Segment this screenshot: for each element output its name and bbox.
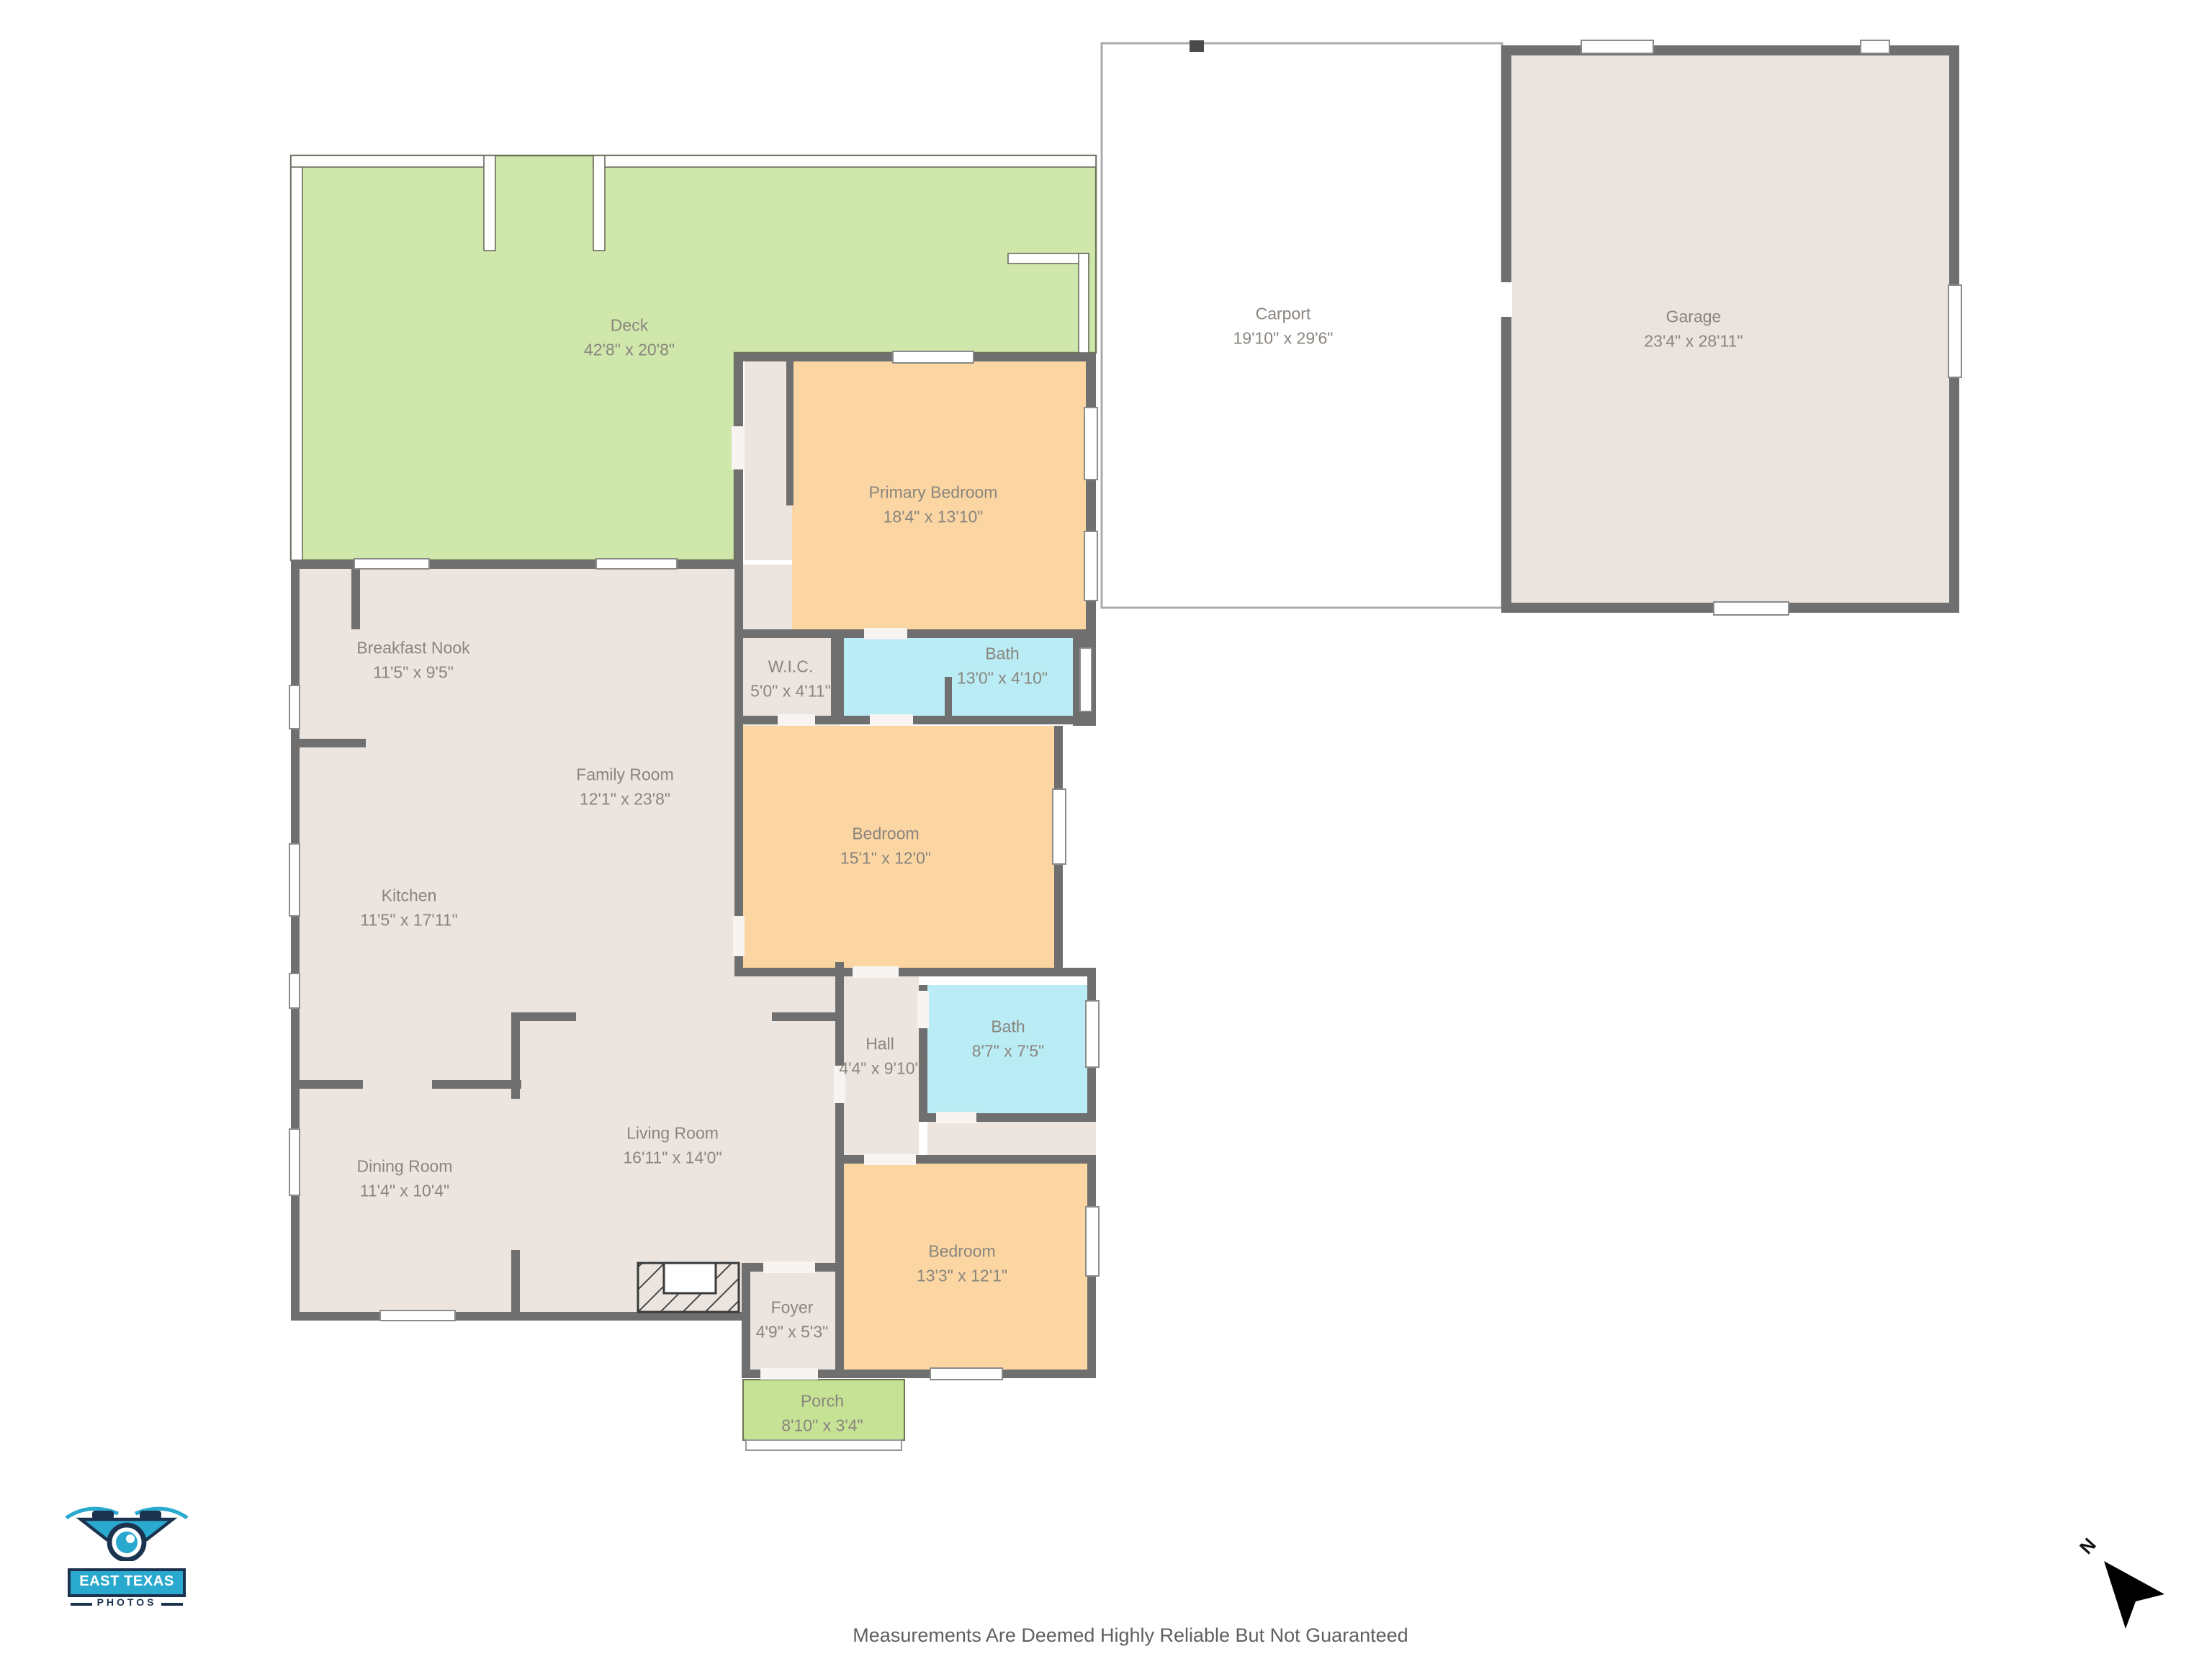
floor-plan-page: Deck42'8" x 20'8" Carport19'10" x 29'6" …: [0, 0, 2212, 1659]
room-vestibule-fill: [745, 361, 792, 560]
room-label-primary-bedroom: Primary Bedroom18'4" x 13'10": [869, 482, 998, 532]
room-label-garage: Garage23'4" x 28'11": [1644, 307, 1743, 356]
room-label-carport: Carport19'10" x 29'6": [1233, 304, 1334, 354]
room-label-porch: Porch8'10" x 3'4": [781, 1391, 863, 1441]
room-label-dining-room: Dining Room11'4" x 10'4": [357, 1156, 453, 1206]
room-label-bedroom-mid: Bedroom15'1" x 12'0": [840, 824, 931, 873]
room-label-foyer: Foyer4'9" x 5'3": [756, 1298, 829, 1347]
room-strip-fill: [927, 1122, 1096, 1155]
room-label-family-room: Family Room12'1" x 23'8": [576, 765, 673, 814]
room-label-kitchen: Kitchen11'5" x 17'11": [360, 886, 458, 935]
measurements-disclaimer: Measurements Are Deemed Highly Reliable …: [853, 1624, 1408, 1646]
logo-line-right: [161, 1602, 183, 1605]
floor-plan: Deck42'8" x 20'8" Carport19'10" x 29'6" …: [0, 0, 2212, 1659]
room-label-bedroom-bottom: Bedroom13'3" x 12'1": [917, 1241, 1007, 1291]
room-label-living-room: Living Room16'11" x 14'0": [623, 1123, 721, 1173]
logo-photos-row: PHOTOS: [71, 1599, 183, 1609]
compass-north-indicator: N: [2078, 1529, 2182, 1645]
north-arrow-icon: [2078, 1529, 2182, 1645]
logo-line-left: [71, 1602, 93, 1605]
room-label-hall: Hall4'4" x 9'10": [839, 1034, 920, 1084]
room-label-deck: Deck42'8" x 20'8": [584, 315, 675, 365]
room-label-wic: W.I.C.5'0" x 4'11": [750, 657, 831, 706]
logo-banner: EAST TEXAS: [68, 1568, 186, 1597]
floor-plan-drawing: [0, 0, 2212, 1659]
fireplace-hatch: [638, 1263, 739, 1312]
drone-camera-icon: [58, 1503, 196, 1561]
logo-photos-label: PHOTOS: [97, 1599, 157, 1609]
east-texas-photos-logo: EAST TEXAS PHOTOS: [58, 1503, 196, 1609]
room-label-bath-mid: Bath8'7" x 7'5": [972, 1017, 1045, 1066]
room-label-breakfast-nook: Breakfast Nook11'5" x 9'5": [356, 638, 469, 688]
room-label-bath-top: Bath13'0" x 4'10": [957, 644, 1048, 693]
